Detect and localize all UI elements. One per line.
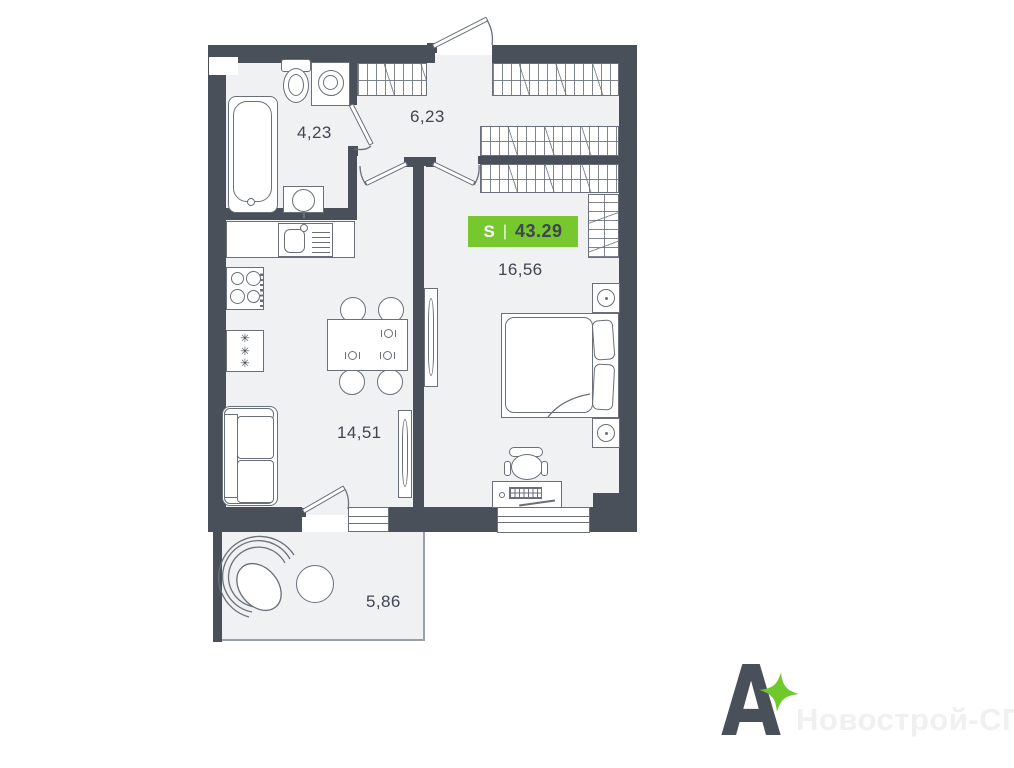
entrance-door-leaf <box>432 17 489 49</box>
room-label-hallway: 6,23 <box>410 107 445 127</box>
room-label-kitchen-living: 14,51 <box>337 423 382 443</box>
sofa-cushion <box>237 460 274 503</box>
toilet-seat <box>288 74 304 96</box>
bathroom-sink <box>283 186 324 213</box>
sofa <box>222 406 278 506</box>
total-area-value: 43.29 <box>515 221 563 242</box>
tv-screen <box>402 419 408 487</box>
sofa-back <box>224 414 238 498</box>
mouse <box>499 492 505 498</box>
nightstand-lamp-dot <box>605 432 608 435</box>
stove-controls <box>260 271 263 307</box>
living-window <box>348 507 389 532</box>
stove-burner <box>246 271 261 286</box>
window-glazing-line <box>498 522 589 523</box>
wall-niche <box>209 57 238 75</box>
nightstand <box>592 283 620 313</box>
place-setting-fork <box>381 330 382 337</box>
kitchen-faucet <box>300 224 308 232</box>
stove-burner <box>231 272 244 285</box>
place-setting <box>348 351 357 360</box>
floor-plan-page: ✳✳✳ <box>0 0 1014 768</box>
bathroom-sink-basin <box>292 189 315 212</box>
place-setting <box>384 329 393 338</box>
room-label-bedroom: 16,56 <box>498 260 543 280</box>
place-setting-knife <box>359 352 360 359</box>
window-glazing-line <box>498 516 589 517</box>
window-glazing-line <box>349 516 388 517</box>
wall-top-left <box>208 45 435 63</box>
window-glazing-line <box>349 523 388 524</box>
nightstand <box>592 418 620 448</box>
wall-balcony-west <box>213 530 222 642</box>
pillow <box>592 319 616 360</box>
bedroom-window <box>497 507 590 533</box>
wall-living-bedroom <box>413 157 424 507</box>
wall-bathroom-east-lower <box>348 156 357 208</box>
stove <box>226 267 264 310</box>
nightstand-lamp-dot <box>605 297 608 300</box>
wall-hall-bedroom <box>478 156 619 164</box>
place-setting-fork <box>345 352 346 359</box>
area-separator: | <box>503 223 507 241</box>
hall-wardrobe-right <box>492 63 619 96</box>
stove-burner <box>247 290 260 303</box>
wall-bottom-b <box>389 507 497 532</box>
washing-machine-drum-inner <box>323 75 338 90</box>
wall-corner-block <box>593 493 637 509</box>
desk-pen <box>519 500 555 507</box>
pillow <box>592 363 615 410</box>
balcony-table <box>296 565 334 603</box>
balcony-parapet-right <box>423 532 425 641</box>
bathtub <box>228 96 278 213</box>
toilet-bowl <box>283 68 309 103</box>
area-prefix: S <box>483 222 494 242</box>
room-label-bathroom: 4,23 <box>297 123 332 143</box>
place-setting-fork <box>380 352 381 359</box>
hall-wardrobe-mid <box>480 126 619 156</box>
kitchen-sink-basin <box>284 229 305 253</box>
place-setting-knife <box>394 352 395 359</box>
place-setting <box>383 351 392 360</box>
wall-bottom-a <box>208 507 302 532</box>
kitchen-sink-unit <box>278 223 333 257</box>
wall-bathroom-door-stub <box>348 146 358 156</box>
hall-wardrobe-left <box>357 63 427 96</box>
office-chair-armrest <box>504 461 511 476</box>
fridge: ✳✳✳ <box>226 330 264 372</box>
bathtub-faucet <box>247 198 255 206</box>
balcony-parapet-bottom <box>222 639 425 641</box>
bathroom-sink-tap <box>303 211 305 218</box>
bedroom-wardrobe-north <box>480 164 619 193</box>
dining-chair <box>339 369 365 395</box>
dining-chair <box>377 369 403 395</box>
bathtub-inner <box>233 101 272 202</box>
washing-machine <box>311 62 350 106</box>
brand-watermark: Новострой-СПб <box>796 702 1014 738</box>
total-area-badge: S | 43.29 <box>468 216 578 247</box>
wall-bottom-c <box>590 507 637 532</box>
sofa-cushion <box>237 416 274 459</box>
fridge-snowflake-icon: ✳✳✳ <box>238 332 252 370</box>
room-label-balcony: 5,86 <box>366 592 401 612</box>
office-chair-armrest <box>541 461 548 476</box>
bed <box>501 313 619 418</box>
dining-table <box>327 319 408 371</box>
place-setting-knife <box>395 330 396 337</box>
bedroom-wardrobe-side <box>588 194 619 258</box>
stove-burner <box>230 289 245 304</box>
tv-bedroom <box>424 288 438 387</box>
entrance-door-arc <box>487 20 492 45</box>
office-chair-seat <box>511 454 543 480</box>
wall-right <box>619 45 637 532</box>
wall-top-right <box>492 45 637 63</box>
desk <box>492 481 562 508</box>
tv-living <box>398 410 412 498</box>
bed-blanket <box>505 317 593 413</box>
tv-screen <box>428 298 434 376</box>
keyboard <box>509 487 542 499</box>
kitchen-drainboard <box>312 229 330 253</box>
brand-logo-letter: А <box>721 664 781 740</box>
